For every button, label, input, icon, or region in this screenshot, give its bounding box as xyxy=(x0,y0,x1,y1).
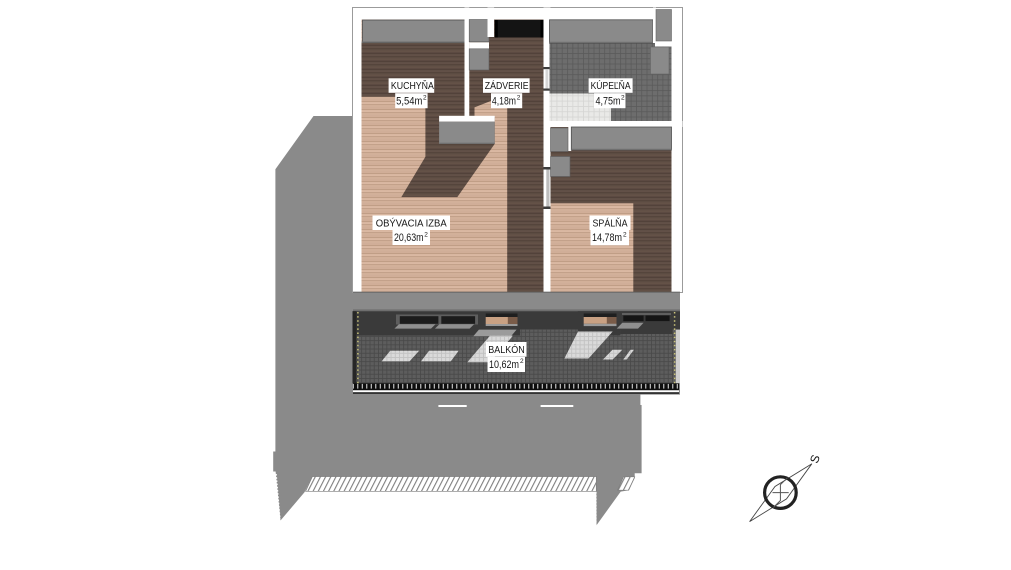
svg-text:20,63m: 20,63m xyxy=(394,232,424,244)
svg-text:ZÁDVERIE: ZÁDVERIE xyxy=(485,81,529,92)
svg-text:4,75m: 4,75m xyxy=(596,95,621,107)
svg-text:2: 2 xyxy=(623,231,627,238)
svg-text:10,62m: 10,62m xyxy=(489,359,519,371)
svg-text:14,78m: 14,78m xyxy=(592,232,622,244)
svg-text:KÚPEĽŇA: KÚPEĽŇA xyxy=(591,81,631,92)
svg-text:2: 2 xyxy=(621,95,625,102)
svg-text:2: 2 xyxy=(423,95,427,102)
svg-text:OBÝVACIA IZBA: OBÝVACIA IZBA xyxy=(376,218,447,229)
svg-text:SPÁLŇA: SPÁLŇA xyxy=(593,218,628,229)
svg-text:2: 2 xyxy=(424,231,428,238)
svg-text:2: 2 xyxy=(517,95,521,102)
svg-text:4,18m: 4,18m xyxy=(492,95,516,107)
svg-text:2: 2 xyxy=(520,358,524,365)
svg-text:5,54m: 5,54m xyxy=(396,95,422,107)
svg-text:BALKÓN: BALKÓN xyxy=(488,345,525,356)
svg-text:KUCHYŇA: KUCHYŇA xyxy=(391,81,434,92)
